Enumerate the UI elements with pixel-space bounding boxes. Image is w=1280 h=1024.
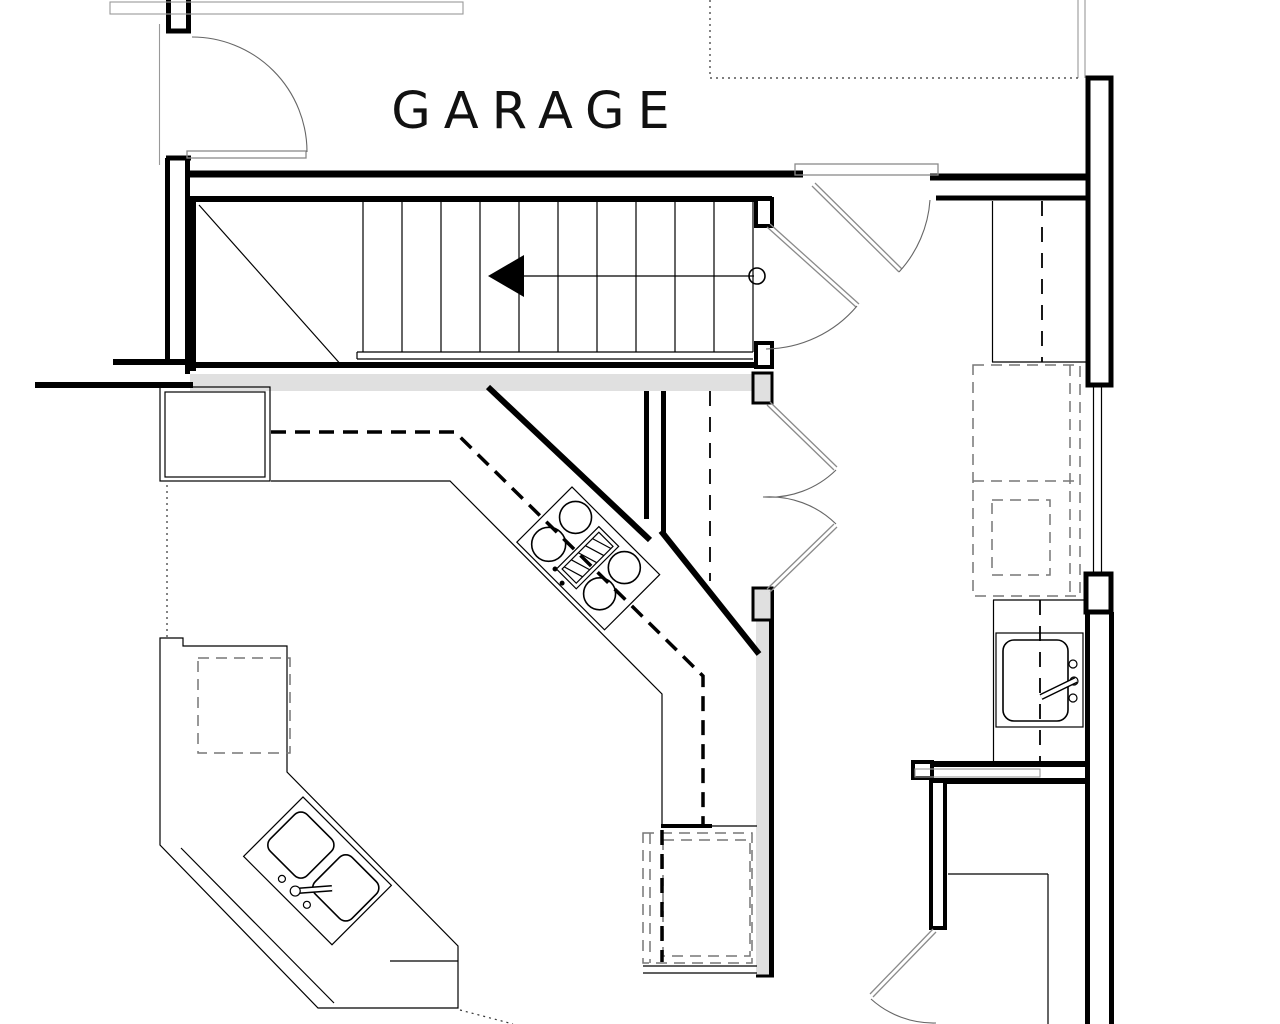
wall-stub: [756, 343, 772, 367]
stair-direction-arrow: [488, 255, 765, 297]
faucet-knob: [302, 900, 312, 910]
center-grill: [556, 527, 618, 589]
refrigerator-dashed: [973, 365, 1080, 596]
kitchen-island: [160, 638, 458, 1008]
right-sink-counter: [915, 600, 1086, 777]
garage-room-label: GARAGE: [391, 82, 683, 141]
cooktop: [517, 487, 660, 630]
wall-stub: [913, 762, 932, 778]
hall-wall-strip: [756, 590, 774, 977]
door-swing-arc: [763, 497, 836, 524]
door-swing-arc: [871, 999, 936, 1023]
wall-segment: [488, 387, 650, 540]
exterior-door-top-left: [187, 37, 307, 158]
door-leaf: [767, 524, 834, 589]
island-upper-cabinet-dashed: [198, 658, 290, 753]
door-leaf: [770, 402, 837, 467]
mudroom-door-from-stair-hall: [766, 224, 859, 349]
window-right: [1094, 385, 1102, 574]
door-swing-arc: [763, 470, 836, 497]
mudroom-door-from-garage: [812, 183, 930, 272]
floor-plan-canvas: GARAGE: [0, 0, 1280, 1024]
door-leaf: [812, 186, 899, 272]
door-swing-arc: [899, 200, 930, 272]
door-leaf: [770, 224, 859, 304]
double-doors-hall: [763, 402, 837, 592]
door-leaf: [770, 527, 837, 592]
door-leaf: [767, 227, 856, 307]
island-double-sink: [244, 797, 392, 945]
wall-stub: [756, 199, 772, 226]
upper-wall-face-lines: [1078, 0, 1085, 78]
door-leaf: [873, 932, 936, 997]
wall-segment: [1086, 574, 1111, 612]
corner-base-cabinet: [160, 387, 270, 481]
stair-treads: [363, 202, 753, 352]
wall-segment: [931, 781, 945, 928]
door-leaf: [767, 405, 834, 470]
garage-door-opening-header: [795, 164, 938, 175]
bottom-right-door: [870, 929, 936, 1023]
stair-half-wall-band: [190, 374, 772, 391]
door-leaf: [870, 929, 933, 994]
stair-landing-diagonal: [199, 205, 343, 367]
door-swing-arc: [192, 37, 307, 152]
floor-plan-svg: GARAGE: [0, 0, 1280, 1024]
stair-handrail: [357, 352, 753, 359]
wall-segment: [1088, 78, 1111, 385]
door-jamb-pillar-bottom: [753, 588, 772, 620]
control-knob: [551, 565, 558, 572]
bottom-appliance-dashed: [643, 830, 757, 973]
faucet-knob: [277, 874, 287, 884]
staircase: [199, 202, 765, 367]
bottom-right-room-lines: [948, 874, 1048, 1024]
door-jamb-pillar-top: [753, 373, 772, 403]
right-counter-upper: [992, 201, 1088, 362]
faucet-base: [288, 884, 302, 898]
walls: [35, 0, 1112, 1024]
door-leaf: [187, 151, 306, 158]
counter-front-edge: [271, 481, 757, 826]
door-leaf: [815, 183, 902, 269]
upper-cabinet-dashed-line: [271, 432, 703, 824]
faucet-knob: [1069, 694, 1077, 702]
faucet-knob: [1069, 660, 1077, 668]
door-swing-arc: [766, 306, 857, 349]
